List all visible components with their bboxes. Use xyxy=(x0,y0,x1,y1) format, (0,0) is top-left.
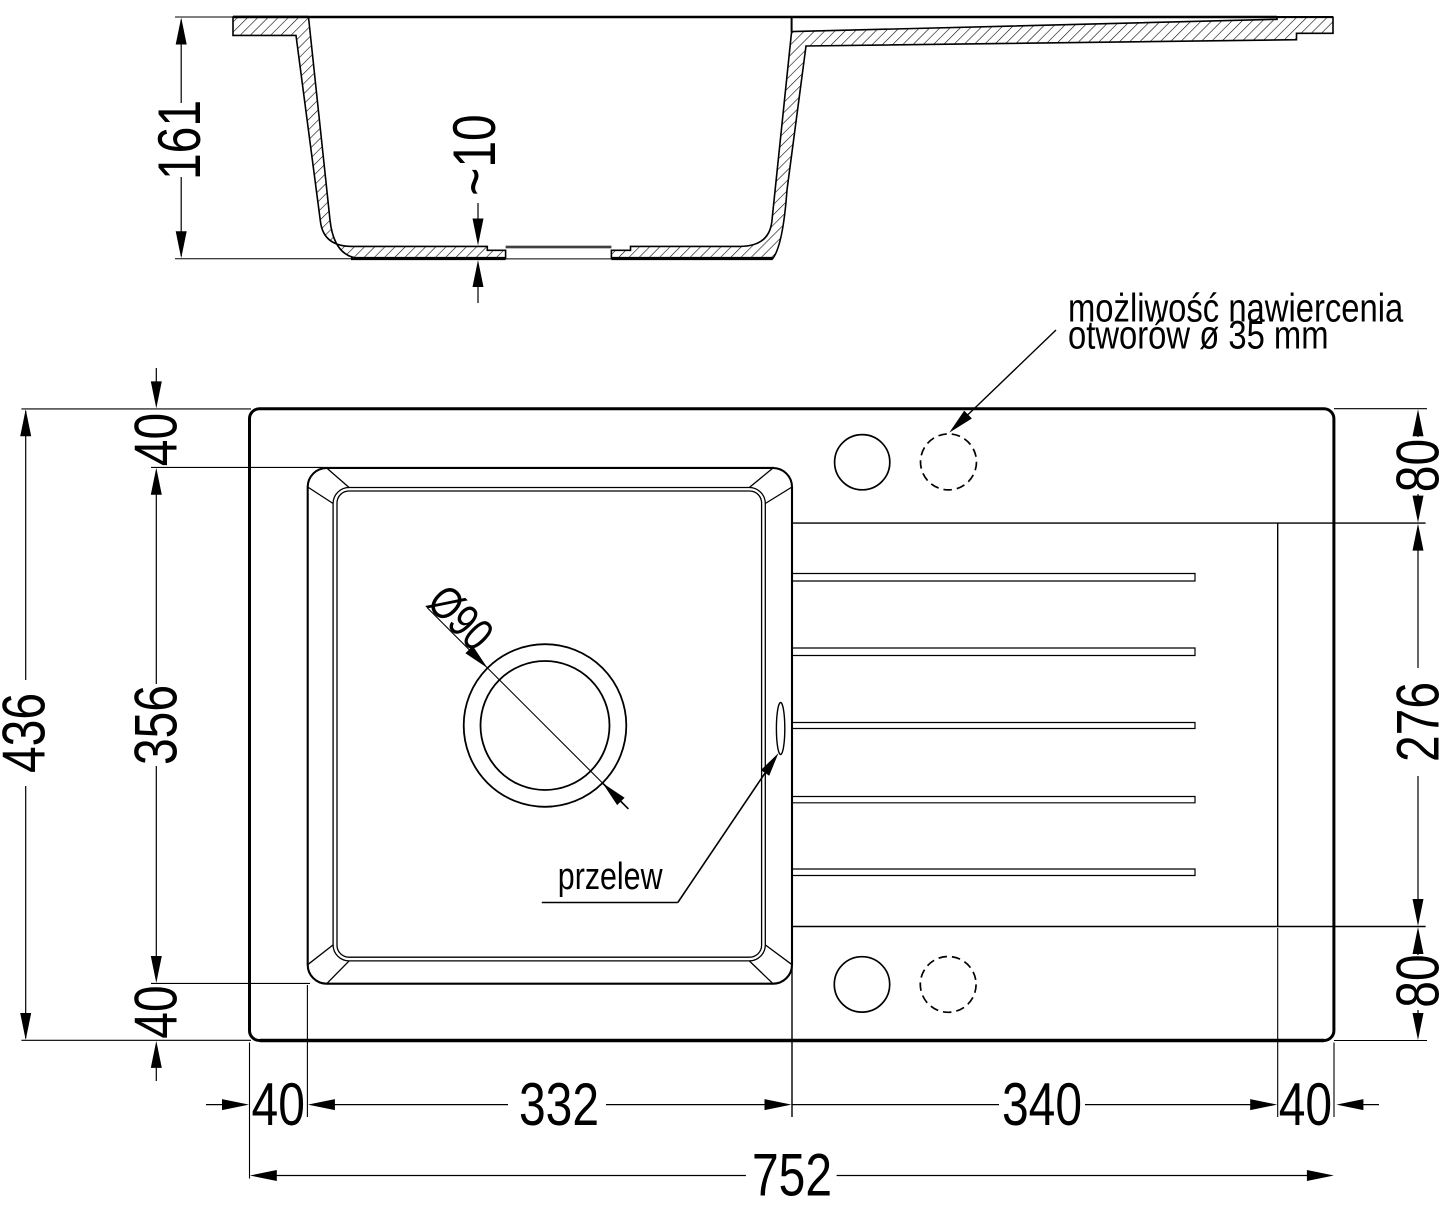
svg-text:436: 436 xyxy=(0,693,58,773)
svg-text:356: 356 xyxy=(123,685,190,765)
svg-text:80: 80 xyxy=(1384,954,1447,1007)
svg-text:80: 80 xyxy=(1384,439,1447,492)
svg-text:40: 40 xyxy=(252,1071,305,1138)
svg-text:otworów ø 35 mm: otworów ø 35 mm xyxy=(1068,313,1329,358)
svg-text:752: 752 xyxy=(752,1142,832,1209)
svg-text:332: 332 xyxy=(519,1071,599,1138)
svg-text:40: 40 xyxy=(1279,1071,1332,1138)
svg-text:40: 40 xyxy=(123,985,190,1038)
svg-text:161: 161 xyxy=(146,100,213,180)
svg-text:przelew: przelew xyxy=(558,856,663,898)
svg-text:340: 340 xyxy=(1002,1071,1082,1138)
svg-text:~10: ~10 xyxy=(441,114,508,195)
svg-text:40: 40 xyxy=(123,413,190,466)
svg-text:276: 276 xyxy=(1384,682,1447,762)
